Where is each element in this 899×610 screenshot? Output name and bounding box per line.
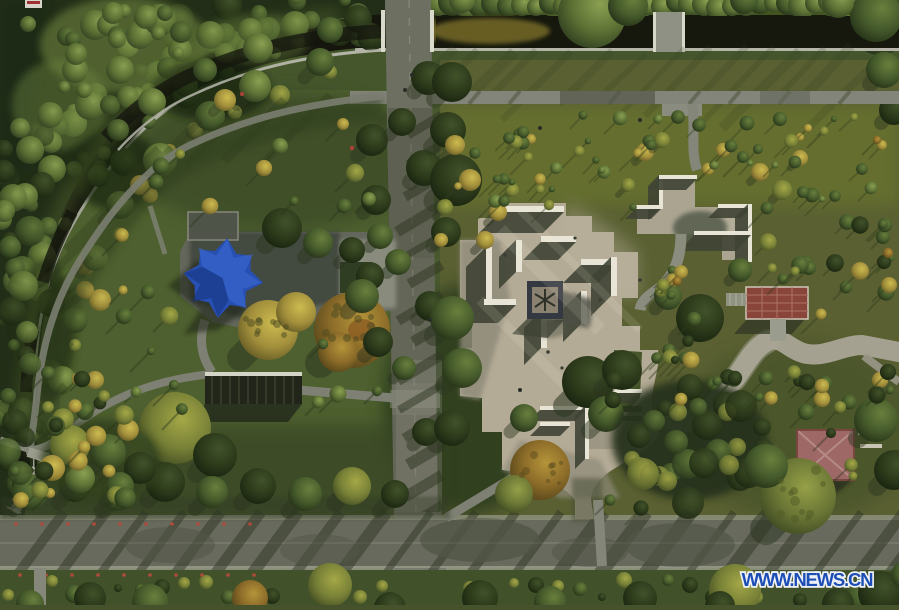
svg-text:WWW.NEWS.CN: WWW.NEWS.CN [742, 569, 874, 590]
